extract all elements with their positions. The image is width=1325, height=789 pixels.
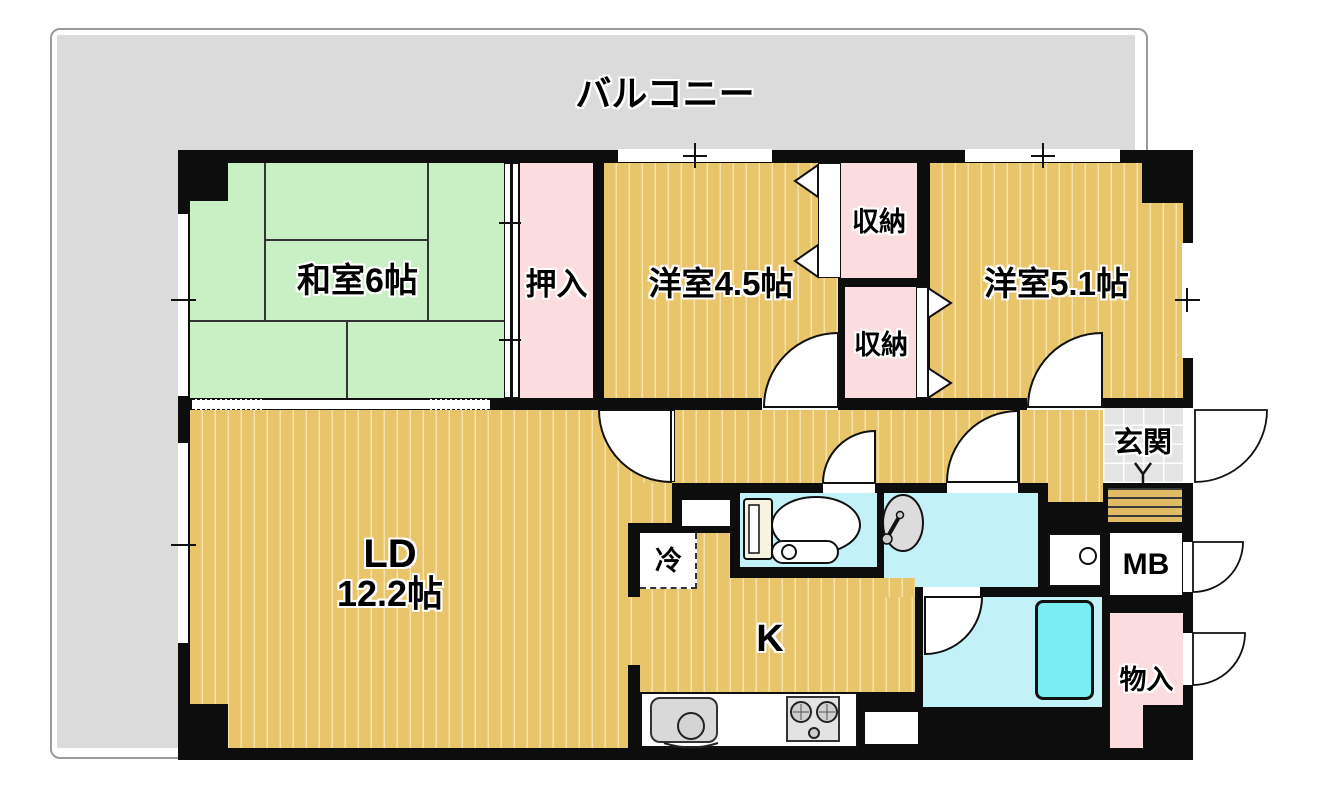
closet-upper-folding-door <box>818 163 841 278</box>
ld-label: LD <box>240 533 540 575</box>
meter-box-label: MB <box>1110 548 1182 582</box>
sliding-door-washitsu-ld <box>192 399 265 410</box>
door-arc-meter-box <box>1193 542 1243 592</box>
door-gap-bathroom <box>923 587 980 597</box>
monoire-label: 物入 <box>1108 664 1185 696</box>
floor-plan: バルコニー 和室6帖 押入 洋室4.5帖 収納 収納 洋室5.1帖 玄関 LD … <box>0 0 1325 789</box>
tatami-line <box>190 320 507 322</box>
stove <box>786 696 840 742</box>
oshiire-label: 押入 <box>514 264 599 304</box>
tatami-line <box>264 239 429 241</box>
balcony-area-left <box>57 35 178 748</box>
washroom-door-leaf <box>1013 410 1020 483</box>
fridge-label: 冷 <box>640 545 697 577</box>
door-gap-western-5-1 <box>1027 398 1103 410</box>
door-gap-washroom <box>947 483 1018 493</box>
window-ld-left <box>178 443 188 643</box>
sliding-door-washitsu-ld <box>427 399 490 410</box>
oshiire-sliding-door <box>504 163 511 398</box>
toilet-room <box>740 493 877 567</box>
wall-corner-top-right <box>1142 150 1193 203</box>
hallway <box>632 410 1103 483</box>
kitchen-sink <box>650 697 718 743</box>
wall-corner-bottom-left <box>180 704 228 750</box>
western-5-1-label: 洋室5.1帖 <box>935 263 1178 303</box>
window-washitsu-left <box>178 214 188 396</box>
window-western-5-1 <box>965 149 1120 162</box>
washing-machine-space <box>1048 533 1102 587</box>
sliding-door-washitsu-ld <box>265 399 427 410</box>
ld-door-leaf <box>666 410 675 482</box>
storage-monoire <box>1110 705 1143 748</box>
ld-size-label: 12.2帖 <box>240 574 540 614</box>
door-arc-entrance <box>1195 410 1267 482</box>
window-right <box>1182 243 1193 358</box>
kitchen-floor-patch <box>877 578 915 597</box>
door-gap-western-4-5 <box>762 398 838 410</box>
genkan-label: 玄関 <box>1103 426 1183 460</box>
hall-to-genkan-strip <box>1048 483 1103 502</box>
closet-upper-label: 収納 <box>839 206 919 238</box>
door-gap-meter-box <box>1183 542 1193 592</box>
door-gap-toilet <box>823 483 875 493</box>
tatami-line <box>346 322 348 398</box>
door-gap-entrance <box>1183 408 1193 483</box>
wall-ld-kitchen-upper <box>628 523 640 597</box>
kitchen-recess <box>865 712 918 744</box>
western-4-5-label: 洋室4.5帖 <box>598 263 844 303</box>
closet-lower-label: 収納 <box>841 329 921 361</box>
wall-ld-kitchen-lower <box>628 665 640 748</box>
balcony-label: バルコニー <box>480 72 850 116</box>
kitchen-label: K <box>700 618 840 660</box>
washitsu-label: 和室6帖 <box>245 261 470 301</box>
door-arc-monoire <box>1193 633 1245 685</box>
entrance-step <box>1108 488 1182 522</box>
bathtub <box>1035 600 1094 700</box>
pipe-space <box>682 500 732 526</box>
wall-corner-top-left <box>178 150 228 201</box>
window-western-4-5 <box>618 149 772 162</box>
washroom <box>884 493 1038 587</box>
